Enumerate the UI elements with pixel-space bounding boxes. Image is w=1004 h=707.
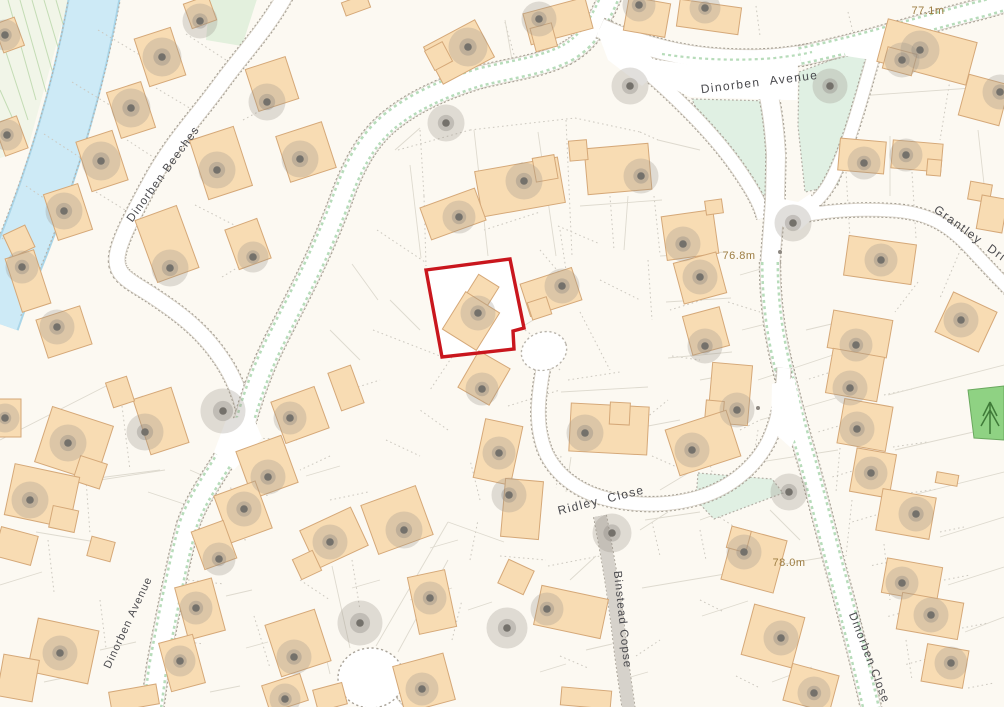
svg-text:76.8m: 76.8m bbox=[722, 250, 755, 262]
svg-text:77.1m: 77.1m bbox=[911, 5, 944, 17]
svg-text:78.0m: 78.0m bbox=[772, 557, 805, 569]
